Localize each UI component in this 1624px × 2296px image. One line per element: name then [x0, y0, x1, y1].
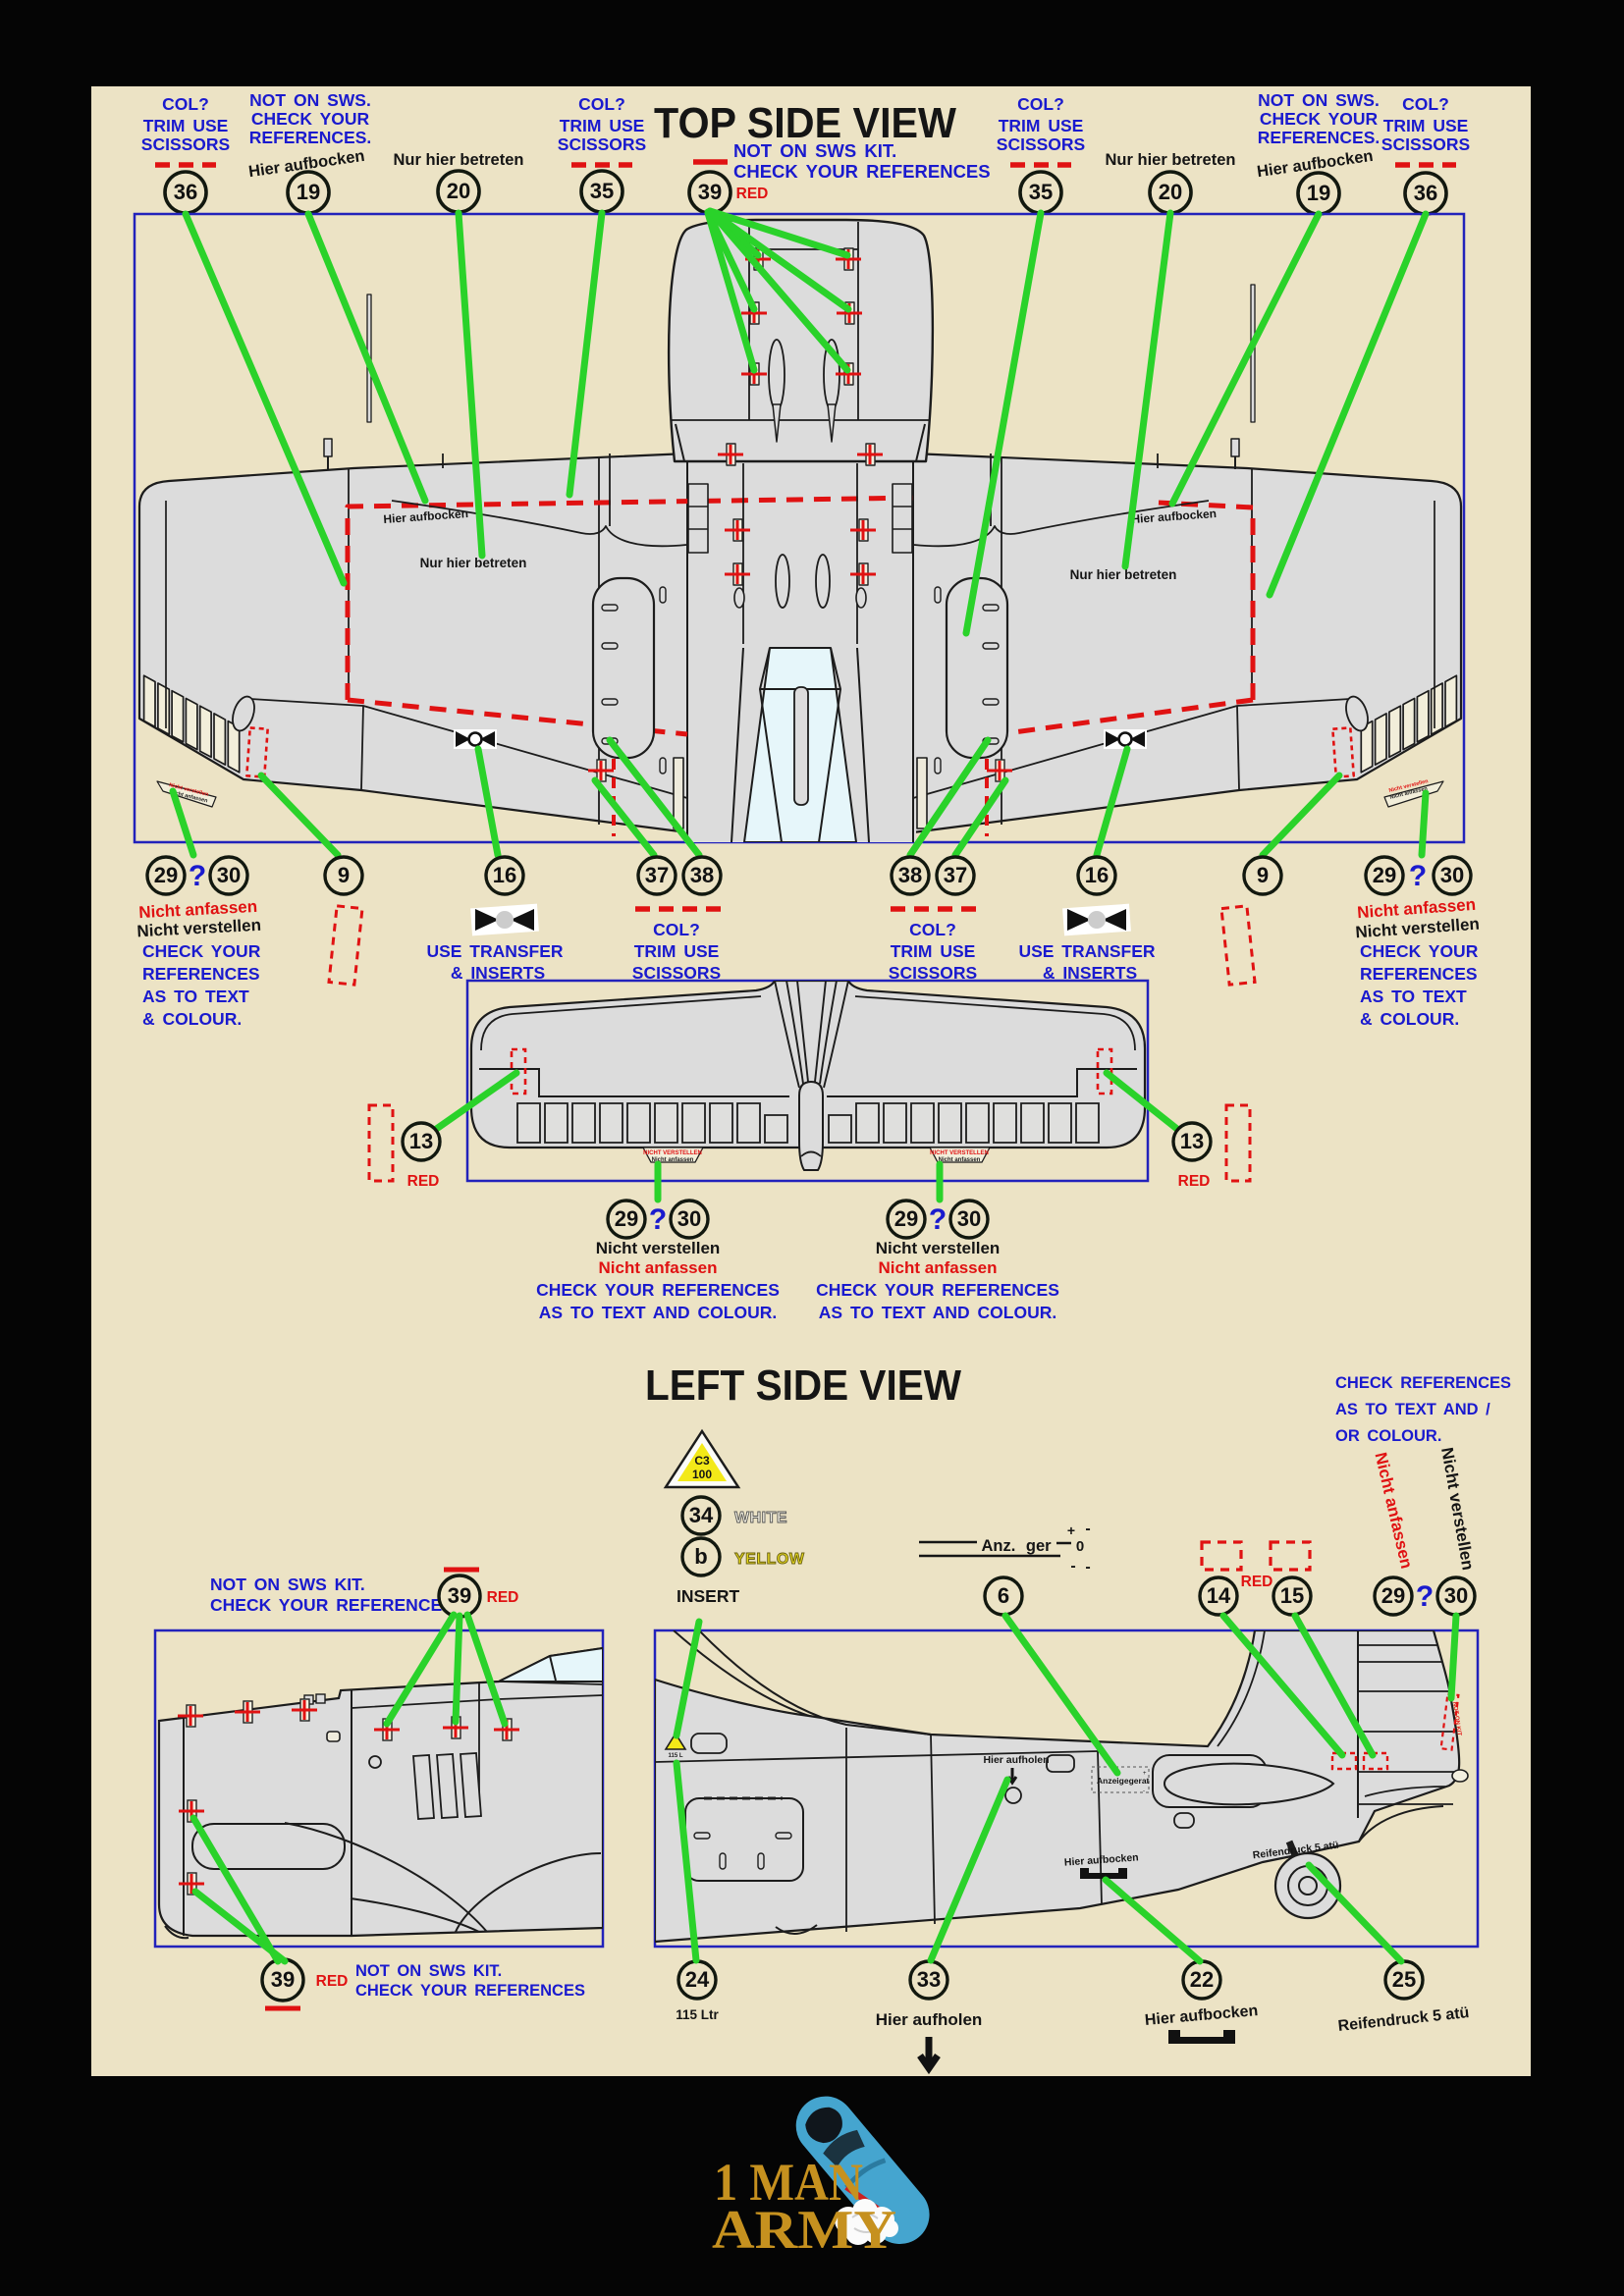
svg-text:NOT ON SWS KIT.: NOT ON SWS KIT.: [210, 1575, 365, 1594]
svg-text:16: 16: [1085, 863, 1109, 887]
svg-text:AS TO TEXT AND /: AS TO TEXT AND /: [1335, 1401, 1490, 1418]
svg-text:Hier aufholen: Hier aufholen: [983, 1754, 1049, 1766]
svg-text:Nicht anfassen: Nicht anfassen: [599, 1258, 718, 1277]
svg-text:20: 20: [1159, 180, 1182, 204]
svg-text:19: 19: [1307, 181, 1330, 205]
svg-text:RED: RED: [1178, 1173, 1211, 1190]
svg-text:NICHT VERSTELLEN: NICHT VERSTELLEN: [643, 1150, 702, 1156]
svg-text:SCISSORS: SCISSORS: [997, 134, 1085, 154]
svg-text:COL?: COL?: [162, 94, 209, 114]
svg-text:ARMY: ARMY: [712, 2200, 896, 2261]
svg-text:22: 22: [1190, 1967, 1214, 1992]
svg-text:39: 39: [698, 180, 722, 204]
svg-text:TRIM USE: TRIM USE: [999, 116, 1084, 135]
svg-text:REFERENCES.: REFERENCES.: [1258, 128, 1380, 147]
svg-text:?: ?: [1416, 1580, 1434, 1613]
svg-text:REFERENCES: REFERENCES: [142, 964, 260, 984]
svg-text:37: 37: [944, 863, 967, 887]
svg-text:35: 35: [1029, 180, 1053, 204]
svg-text:30: 30: [217, 863, 241, 887]
svg-text:30: 30: [1444, 1583, 1468, 1608]
svg-text:COL?: COL?: [909, 920, 956, 939]
svg-text:CHECK YOUR: CHECK YOUR: [251, 109, 370, 129]
svg-text:USE TRANSFER: USE TRANSFER: [426, 941, 563, 961]
svg-text:20: 20: [447, 179, 470, 203]
svg-text:16: 16: [493, 863, 516, 887]
svg-text:Anz. ger: Anz. ger: [981, 1537, 1052, 1555]
svg-text:+: +: [1067, 1522, 1075, 1538]
svg-text:24: 24: [685, 1967, 710, 1992]
svg-text:TRIM USE: TRIM USE: [560, 116, 645, 135]
svg-text:RED: RED: [487, 1589, 519, 1606]
svg-text:NICHT VERSTELLEN: NICHT VERSTELLEN: [930, 1150, 989, 1156]
svg-text:13: 13: [1180, 1129, 1204, 1153]
svg-text:CHECK YOUR REFERENCES: CHECK YOUR REFERENCES: [816, 1280, 1059, 1300]
svg-text:CHECK YOUR: CHECK YOUR: [1260, 109, 1379, 129]
svg-text:19: 19: [297, 180, 320, 204]
svg-text:29: 29: [154, 863, 178, 887]
svg-text:29: 29: [1381, 1583, 1405, 1608]
svg-text:C3: C3: [694, 1454, 710, 1468]
svg-text:TRIM USE: TRIM USE: [634, 941, 720, 961]
svg-text:TRIM USE: TRIM USE: [1383, 116, 1469, 135]
svg-text:Hier aufholen: Hier aufholen: [876, 2010, 983, 2029]
svg-text:Nur hier betreten: Nur hier betreten: [394, 151, 524, 169]
svg-text:115 Ltr: 115 Ltr: [676, 2007, 719, 2022]
svg-text:Nur hier betreten: Nur hier betreten: [1070, 567, 1177, 582]
svg-text:25: 25: [1392, 1967, 1416, 1992]
svg-text:COL?: COL?: [1402, 94, 1449, 114]
svg-text:RED: RED: [316, 1973, 349, 1990]
svg-text:REFERENCES.: REFERENCES.: [249, 128, 371, 147]
svg-text:-: -: [1085, 1521, 1090, 1537]
svg-text:30: 30: [677, 1206, 701, 1231]
svg-text:RED: RED: [1241, 1574, 1273, 1590]
svg-text:-: -: [1143, 1789, 1145, 1794]
svg-text:0: 0: [1076, 1538, 1084, 1555]
svg-text:& COLOUR.: & COLOUR.: [1360, 1009, 1459, 1029]
svg-text:39: 39: [448, 1583, 471, 1608]
svg-text:?: ?: [929, 1203, 947, 1236]
svg-text:?: ?: [189, 860, 206, 892]
svg-text:CHECK YOUR REFERENCES: CHECK YOUR REFERENCES: [536, 1280, 780, 1300]
svg-text:SCISSORS: SCISSORS: [141, 134, 230, 154]
svg-text:15: 15: [1280, 1583, 1304, 1608]
svg-text:Nicht verstellen: Nicht verstellen: [876, 1239, 1001, 1257]
svg-text:INSERT: INSERT: [677, 1586, 739, 1606]
svg-text:36: 36: [1414, 181, 1437, 205]
svg-text:AS TO TEXT: AS TO TEXT: [142, 987, 249, 1006]
svg-text:TRIM USE: TRIM USE: [891, 941, 976, 961]
svg-text:34: 34: [689, 1503, 714, 1527]
svg-text:COL?: COL?: [653, 920, 700, 939]
svg-text:b: b: [694, 1544, 707, 1569]
svg-text:REFERENCES: REFERENCES: [1360, 964, 1478, 984]
svg-text:29: 29: [615, 1206, 638, 1231]
svg-text:AS TO TEXT: AS TO TEXT: [1360, 987, 1467, 1006]
svg-text:YELLOW: YELLOW: [734, 1551, 805, 1568]
svg-text:SCISSORS: SCISSORS: [1381, 134, 1470, 154]
svg-text:37: 37: [645, 863, 669, 887]
svg-text:COL?: COL?: [578, 94, 625, 114]
svg-text:38: 38: [898, 863, 922, 887]
svg-text:NOT ON SWS.: NOT ON SWS.: [249, 90, 371, 110]
svg-text:9: 9: [338, 863, 350, 887]
svg-text:9: 9: [1257, 863, 1269, 887]
svg-text:-: -: [1070, 1558, 1075, 1575]
svg-text:-: -: [1085, 1559, 1090, 1575]
svg-text:CHECK YOUR REFERENCES: CHECK YOUR REFERENCES: [733, 161, 991, 182]
svg-text:33: 33: [917, 1967, 941, 1992]
svg-text:RED: RED: [407, 1173, 440, 1190]
svg-text:38: 38: [690, 863, 714, 887]
svg-text:RED: RED: [736, 186, 769, 202]
svg-text:36: 36: [174, 180, 197, 204]
svg-text:NOT ON SWS.: NOT ON SWS.: [1258, 90, 1380, 110]
svg-text:30: 30: [957, 1206, 981, 1231]
svg-text:WHITE: WHITE: [734, 1510, 787, 1526]
svg-text:CHECK YOUR REFERENCES: CHECK YOUR REFERENCES: [210, 1595, 454, 1615]
svg-text:Nur hier betreten: Nur hier betreten: [1106, 151, 1236, 169]
svg-text:?: ?: [649, 1203, 667, 1236]
svg-text:35: 35: [590, 179, 614, 203]
svg-text:30: 30: [1440, 863, 1464, 887]
svg-text:COL?: COL?: [1017, 94, 1064, 114]
svg-text:+: +: [1143, 1771, 1147, 1777]
svg-text:Anzeigegerat 0: Anzeigegerat 0: [1097, 1776, 1157, 1786]
svg-text:SCISSORS: SCISSORS: [558, 134, 646, 154]
svg-text:14: 14: [1207, 1583, 1231, 1608]
svg-text:CHECK REFERENCES: CHECK REFERENCES: [1335, 1374, 1511, 1392]
svg-text:Nur hier betreten: Nur hier betreten: [420, 556, 527, 570]
svg-text:115 L: 115 L: [668, 1753, 682, 1759]
svg-text:29: 29: [1373, 863, 1396, 887]
svg-text:Nicht anfassen: Nicht anfassen: [879, 1258, 998, 1277]
svg-text:13: 13: [409, 1129, 433, 1153]
svg-text:CHECK YOUR REFERENCES: CHECK YOUR REFERENCES: [355, 1982, 585, 2000]
svg-text:AS TO TEXT AND COLOUR.: AS TO TEXT AND COLOUR.: [819, 1303, 1056, 1322]
svg-text:CHECK YOUR: CHECK YOUR: [1360, 941, 1479, 961]
svg-text:LEFT SIDE VIEW: LEFT SIDE VIEW: [645, 1362, 961, 1410]
svg-text:NOT ON SWS KIT.: NOT ON SWS KIT.: [355, 1962, 502, 1980]
svg-text:OR COLOUR.: OR COLOUR.: [1335, 1427, 1441, 1445]
svg-text:100: 100: [692, 1468, 712, 1481]
svg-text:6: 6: [998, 1583, 1009, 1608]
svg-text:Nicht verstellen: Nicht verstellen: [596, 1239, 721, 1257]
svg-text:AS TO TEXT AND COLOUR.: AS TO TEXT AND COLOUR.: [539, 1303, 777, 1322]
svg-text:?: ?: [1409, 860, 1427, 892]
svg-text:Nicht anfassen: Nicht anfassen: [939, 1157, 981, 1163]
svg-text:39: 39: [271, 1967, 295, 1992]
svg-text:& COLOUR.: & COLOUR.: [142, 1009, 242, 1029]
svg-text:TRIM USE: TRIM USE: [143, 116, 229, 135]
svg-text:NOT ON SWS KIT.: NOT ON SWS KIT.: [733, 140, 896, 161]
svg-text:USE TRANSFER: USE TRANSFER: [1018, 941, 1155, 961]
svg-text:29: 29: [894, 1206, 918, 1231]
svg-text:CHECK YOUR: CHECK YOUR: [142, 941, 261, 961]
